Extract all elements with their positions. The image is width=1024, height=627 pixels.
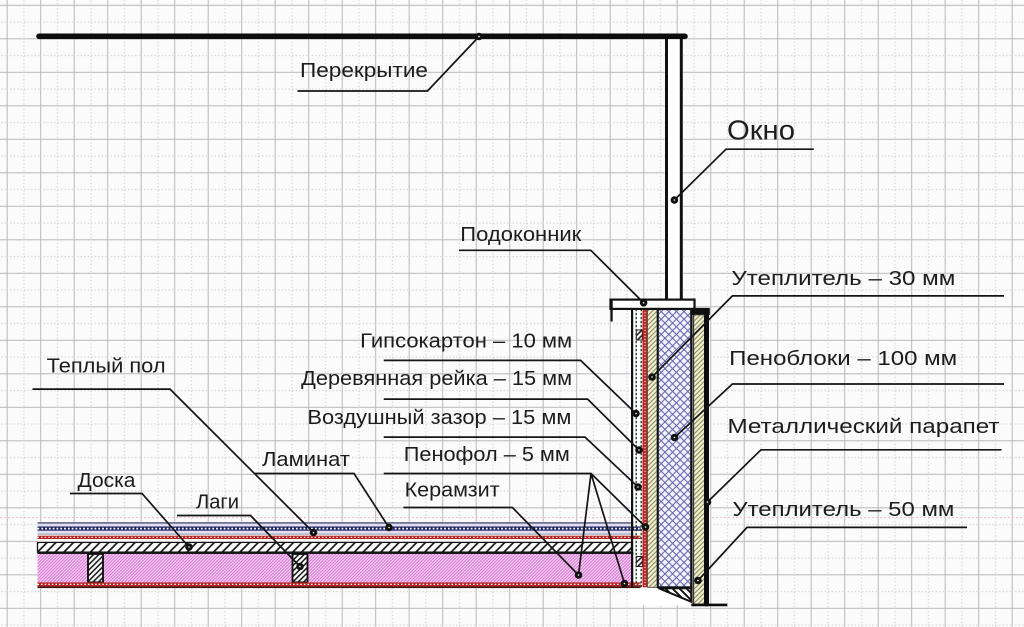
svg-text:Ламинат: Ламинат <box>262 448 351 471</box>
svg-text:Деревянная рейка – 15 мм: Деревянная рейка – 15 мм <box>301 367 572 390</box>
svg-text:Окно: Окно <box>727 115 795 146</box>
svg-text:Керамзит: Керамзит <box>405 479 501 502</box>
svg-text:Металлический парапет: Металлический парапет <box>728 415 1001 438</box>
svg-text:Доска: Доска <box>78 469 137 492</box>
svg-text:Лаги: Лаги <box>196 491 239 514</box>
svg-text:Пеноблоки – 100 мм: Пеноблоки – 100 мм <box>729 347 957 370</box>
svg-text:Утеплитель – 50 мм: Утеплитель – 50 мм <box>732 498 954 521</box>
svg-text:Перекрытие: Перекрытие <box>300 59 428 82</box>
svg-text:Утеплитель – 30 мм: Утеплитель – 30 мм <box>731 267 955 290</box>
svg-text:Теплый пол: Теплый пол <box>47 355 166 378</box>
svg-text:Подоконник: Подоконник <box>460 223 582 246</box>
svg-text:Гипсокартон – 10 мм: Гипсокартон – 10 мм <box>360 330 572 353</box>
svg-text:Пенофол – 5 мм: Пенофол – 5 мм <box>404 443 570 466</box>
svg-text:Воздушный зазор – 15 мм: Воздушный зазор – 15 мм <box>307 406 571 429</box>
